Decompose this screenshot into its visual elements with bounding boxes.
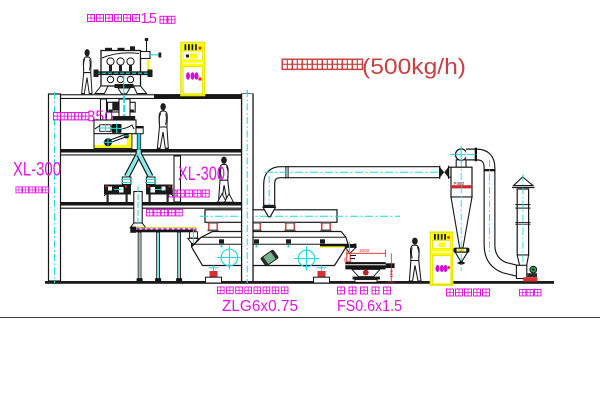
svg-text:P450: P450 [454,181,465,186]
svg-text:ZLG6x0.75: ZLG6x0.75 [222,298,298,315]
svg-text:(500kg/h): (500kg/h) [362,54,466,79]
svg-text:XL-300: XL-300 [178,164,225,185]
svg-text:541: 541 [389,270,394,278]
svg-text:1500: 1500 [359,248,370,253]
svg-text:FS0.6x1.5: FS0.6x1.5 [337,298,402,315]
svg-text:1.5: 1.5 [141,11,158,27]
svg-text:XL-300: XL-300 [13,160,61,181]
